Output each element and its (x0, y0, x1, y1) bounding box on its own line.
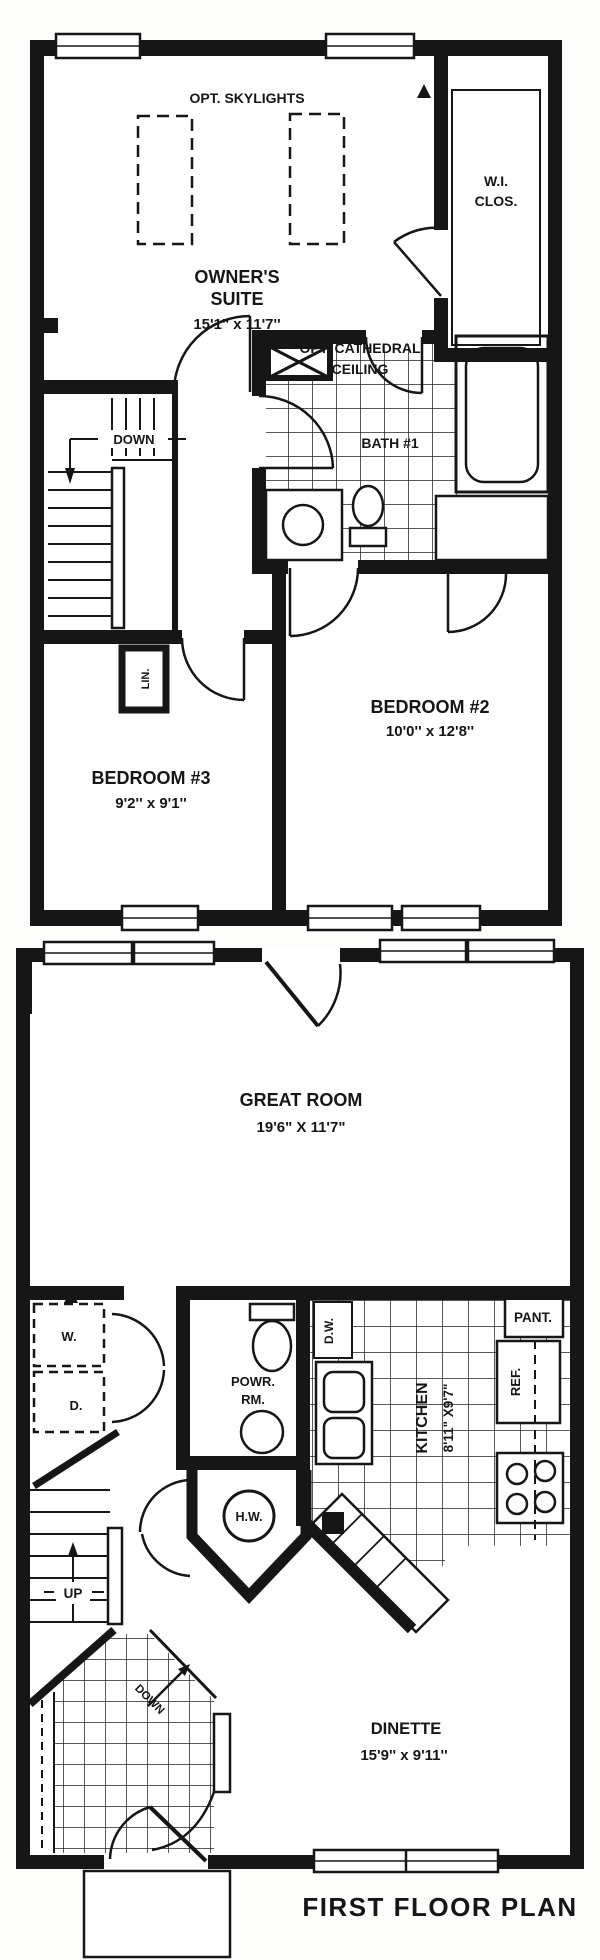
window (134, 942, 214, 964)
bath-sink (266, 490, 342, 560)
plan-title: FIRST FLOOR PLAN (302, 1892, 577, 1922)
window (56, 34, 140, 58)
range-stove (497, 1453, 563, 1523)
kitchen-sink (316, 1362, 372, 1464)
window (122, 906, 198, 930)
foyer-door-leaf (214, 1714, 230, 1792)
label-kitchen: KITCHEN (414, 1382, 431, 1453)
window (44, 942, 132, 964)
kitchen-post (322, 1512, 344, 1534)
window (468, 940, 554, 962)
label-owners-suite-dims: 15'1'' x 11'7'' (193, 316, 280, 333)
label-linen: LIN. (140, 669, 152, 690)
label-great-room: GREAT ROOM (240, 1090, 363, 1110)
label-dishwasher: D.W. (322, 1318, 336, 1344)
label-dinette-dims: 15'9'' x 9'11'' (360, 1747, 447, 1764)
label-wi-2: CLOS. (475, 193, 518, 209)
label-great-room-dims: 19'6" X 11'7" (257, 1119, 346, 1136)
label-down-upper: DOWN (113, 432, 154, 447)
label-bedroom2: BEDROOM #2 (370, 697, 489, 717)
label-hot-water: H.W. (235, 1510, 262, 1524)
label-washer: W. (61, 1329, 76, 1344)
label-bedroom3-dims: 9'2'' x 9'1'' (115, 795, 186, 812)
label-dinette: DINETTE (371, 1720, 442, 1738)
front-stoop (84, 1871, 230, 1957)
label-refrigerator: REF. (508, 1368, 523, 1396)
label-powder-2: RM. (241, 1392, 265, 1407)
second-floor-plan: OPT. SKYLIGHTS OWNER'S SUITE 15'1'' x 11… (30, 34, 562, 930)
label-owners-suite-2: SUITE (210, 289, 263, 309)
window (314, 1850, 498, 1872)
first-floor-plan: GREAT ROOM 19'6" X 11'7" W. D. POWR. RM.… (16, 940, 584, 1957)
label-bedroom2-dims: 10'0'' x 12'8'' (386, 723, 474, 740)
refrigerator-box (497, 1341, 560, 1423)
window (380, 940, 466, 962)
stair-rail (112, 468, 124, 628)
floor-plan-drawing: OPT. SKYLIGHTS OWNER'S SUITE 15'1'' x 11… (0, 0, 600, 1960)
label-powder-1: POWR. (231, 1374, 275, 1389)
label-opt-skylights: OPT. SKYLIGHTS (189, 90, 304, 106)
corner-post (16, 948, 32, 1014)
window (402, 906, 480, 930)
bath-toilet (350, 486, 386, 546)
label-wi-1: W.I. (484, 173, 508, 189)
label-cathedral-2: CEILING (332, 361, 389, 377)
label-pantry: PANT. (514, 1310, 552, 1325)
window (308, 906, 392, 930)
label-dryer: D. (70, 1398, 83, 1413)
label-kitchen-dims: 8'11" X9'7" (441, 1384, 456, 1453)
stair-rail (108, 1528, 122, 1624)
label-owners-suite-1: OWNER'S (194, 267, 279, 287)
label-up: UP (64, 1586, 83, 1601)
label-bedroom3: BEDROOM #3 (91, 768, 210, 788)
floor-plan-page: OPT. SKYLIGHTS OWNER'S SUITE 15'1'' x 11… (0, 0, 600, 1960)
bedroom2-closet (436, 496, 548, 560)
wall-post (44, 318, 58, 333)
rear-door-opening (262, 946, 340, 964)
label-bath1: BATH #1 (361, 435, 419, 451)
label-cathedral-1: OPT. CATHEDRAL (299, 340, 421, 356)
powder-toilet (250, 1304, 294, 1371)
window (326, 34, 414, 58)
front-door-opening (104, 1853, 208, 1871)
powder-sink (241, 1411, 283, 1453)
